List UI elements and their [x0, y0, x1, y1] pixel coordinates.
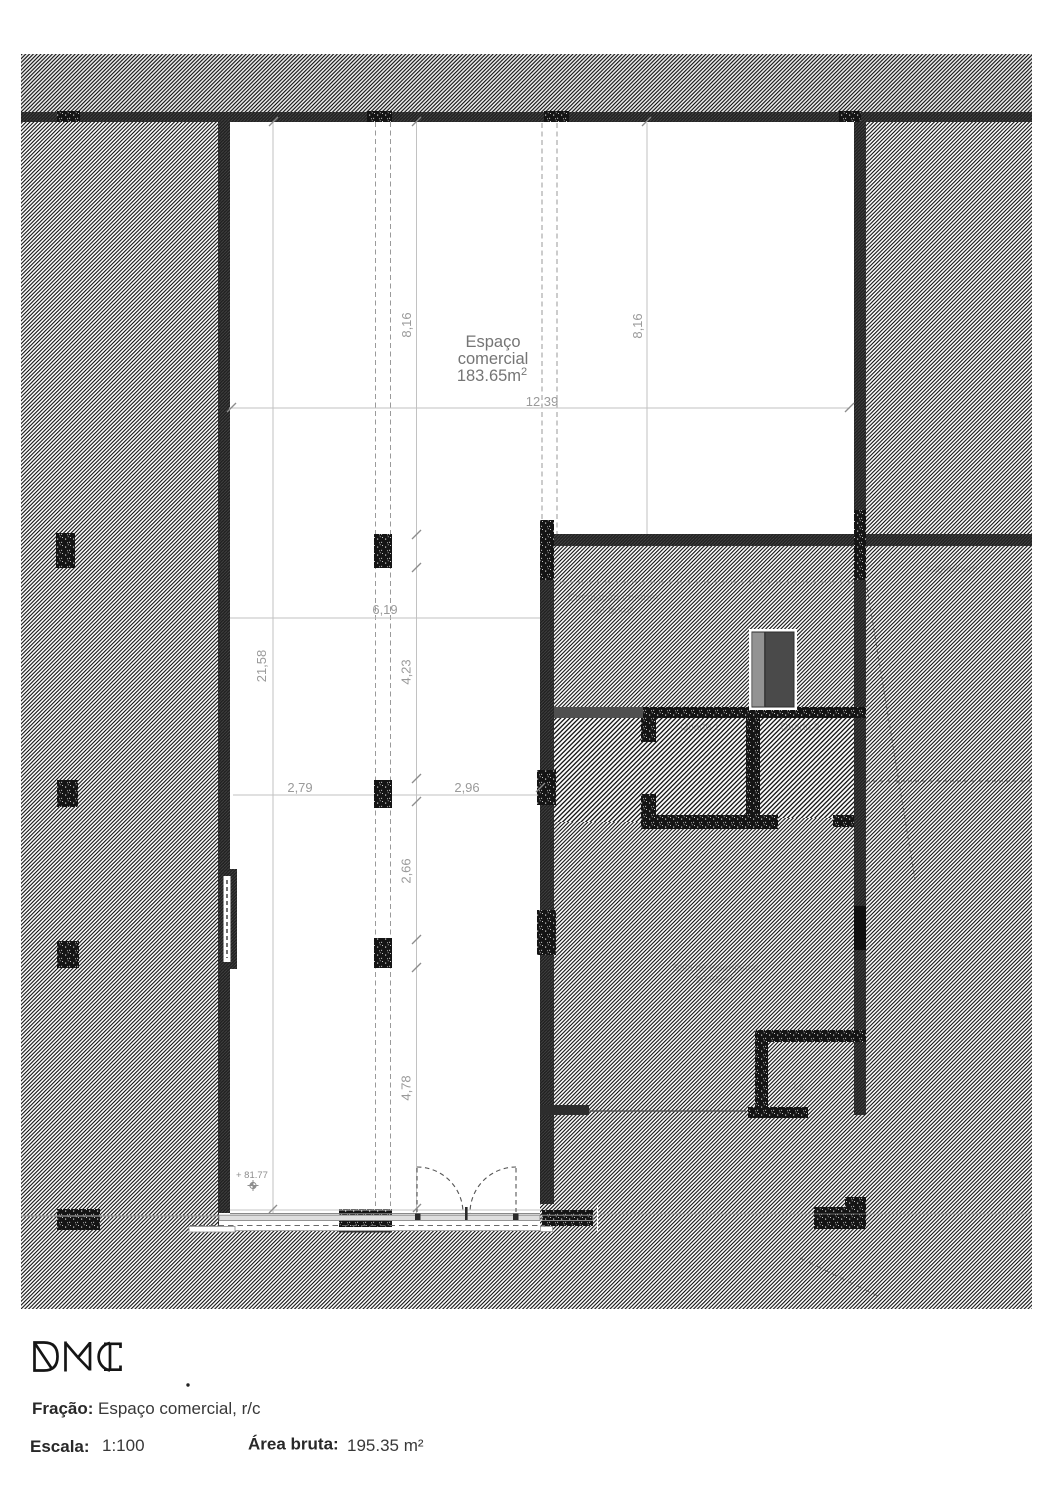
- svg-text:4,78: 4,78: [399, 1075, 414, 1100]
- svg-text:Quarto 1: Quarto 1: [681, 722, 720, 733]
- svg-text:I.s.: I.s.: [793, 1082, 806, 1093]
- svg-text:Circulação comum: Circulação comum: [567, 592, 658, 604]
- svg-text:21,58: 21,58: [254, 650, 269, 683]
- svg-text:Fração:: Fração:: [32, 1399, 93, 1418]
- svg-text:8,16: 8,16: [399, 312, 414, 337]
- svg-text:+ 81.77: + 81.77: [236, 1170, 268, 1181]
- svg-text:Espaço: Espaço: [465, 333, 520, 351]
- svg-text:1:100: 1:100: [102, 1436, 145, 1455]
- svg-text:183.65m2: 183.65m2: [457, 366, 527, 385]
- svg-text:2,66: 2,66: [399, 858, 414, 883]
- svg-text:Espaço comercial, r/c: Espaço comercial, r/c: [98, 1399, 261, 1418]
- svg-text:Quarto 2: Quarto 2: [781, 722, 820, 733]
- svg-text:20.95m²: 20.95m²: [696, 975, 733, 986]
- svg-text:12,39: 12,39: [526, 394, 559, 409]
- svg-text:Área bruta:: Área bruta:: [248, 1435, 339, 1454]
- svg-text:195.35 m²: 195.35 m²: [347, 1436, 424, 1455]
- svg-text:Escala:: Escala:: [30, 1437, 90, 1456]
- svg-text:2,79: 2,79: [287, 780, 312, 795]
- svg-text:46.80m²: 46.80m²: [593, 605, 634, 617]
- svg-text:4,23: 4,23: [399, 659, 414, 684]
- svg-text:2,96: 2,96: [454, 780, 479, 795]
- svg-text:6,19: 6,19: [372, 602, 397, 617]
- svg-text:comercial: comercial: [458, 350, 529, 368]
- svg-text:Sala de estar/jantar: Sala de estar/jantar: [673, 963, 760, 974]
- svg-text:8,16: 8,16: [630, 313, 645, 338]
- svg-text:Logradouro: Logradouro: [926, 564, 978, 575]
